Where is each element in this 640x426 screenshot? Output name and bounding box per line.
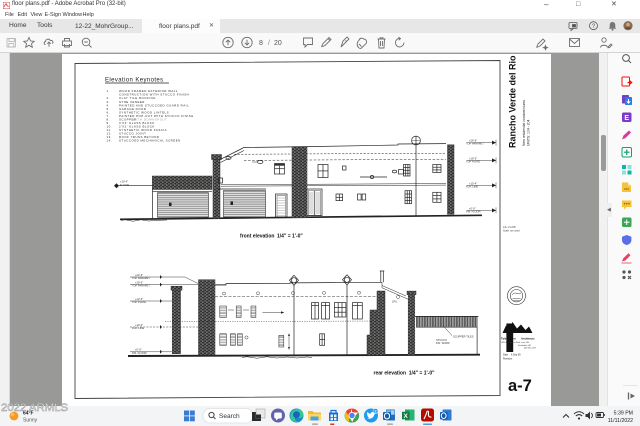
svg-text:E-Sign: E-Sign (45, 12, 62, 18)
svg-text:Elevation Keynotes: Elevation Keynotes (105, 78, 164, 84)
svg-text:6 Sep 05: 6 Sep 05 (511, 354, 521, 357)
svg-text:14.: 14. (107, 138, 113, 142)
svg-text:a-7: a-7 (508, 377, 532, 395)
svg-text:FLOOR: FLOOR (120, 183, 129, 187)
svg-text:Help: Help (83, 12, 94, 18)
svg-text:1818 E. Camino Real, suite 100: 1818 E. Camino Real, suite 100 (501, 341, 530, 344)
svg-text:FIN. FLOOR: FIN. FLOOR (132, 351, 147, 355)
svg-text:STUCCOED MECHANICAL SCREEN: STUCCOED MECHANICAL SCREEN (119, 138, 181, 142)
svg-text:TOP PLATE: TOP PLATE (466, 159, 480, 163)
svg-text:Rancho Verde del Rio: Rancho Verde del Rio (508, 55, 518, 148)
svg-text:FIN. FLOOR: FIN. FLOOR (466, 209, 481, 213)
svg-text:8: 8 (259, 40, 263, 47)
svg-text:View: View (31, 12, 43, 18)
svg-text:5:39 PM: 5:39 PM (614, 411, 633, 417)
svg-text:UNITS: 104 - 204: UNITS: 104 - 204 (527, 120, 531, 146)
svg-text:File: File (5, 12, 14, 18)
svg-text:TOP PARAPET: TOP PARAPET (132, 276, 150, 280)
svg-text:Scottsdale, AZ: Scottsdale, AZ (518, 344, 532, 347)
svg-text:Window: Window (63, 12, 83, 18)
svg-text:FLR. LINE: FLR. LINE (466, 184, 478, 188)
svg-text:Sunny: Sunny (23, 418, 38, 424)
svg-text:SCUPPER TILES: SCUPPER TILES (453, 335, 474, 339)
svg-text:TylerGreen: TylerGreen (501, 337, 516, 341)
svg-text:FIN. WORK: FIN. WORK (436, 341, 450, 345)
svg-text:front elevation: front elevation (240, 233, 274, 239)
svg-text:11/11/2022: 11/11/2022 (608, 418, 633, 424)
svg-text:1.: 1. (107, 89, 110, 93)
svg-text:Architects: Architects (521, 337, 535, 341)
svg-text:New residential condominiums: New residential condominiums (522, 100, 526, 146)
svg-text:Revision: Revision (503, 358, 513, 361)
svg-text:Edit: Edit (18, 12, 28, 18)
svg-text:480 555 1271: 480 555 1271 (524, 348, 537, 350)
svg-text:TOP PLATE: TOP PLATE (132, 300, 146, 304)
svg-text:rear elevation: rear elevation (374, 371, 407, 377)
svg-text:Date: Date (503, 354, 509, 357)
svg-text:TOP PARAPET: TOP PARAPET (132, 284, 150, 288)
svg-text:TOP PARAPET: TOP PARAPET (466, 142, 484, 146)
svg-text:E: E (624, 115, 629, 122)
svg-text:20: 20 (274, 40, 282, 47)
svg-text:1/4" = 1'-0": 1/4" = 1'-0" (409, 371, 435, 377)
svg-text:1/4" = 1'-0": 1/4" = 1'-0" (277, 233, 303, 239)
svg-text:LPU: LPU (392, 300, 397, 304)
svg-text:Scale: as noted: Scale: as noted (503, 230, 520, 233)
svg-text:/: / (268, 40, 270, 47)
svg-text:Search: Search (219, 413, 240, 420)
svg-text:X: X (404, 413, 409, 420)
svg-text:FLR. LINE: FLR. LINE (132, 326, 144, 330)
